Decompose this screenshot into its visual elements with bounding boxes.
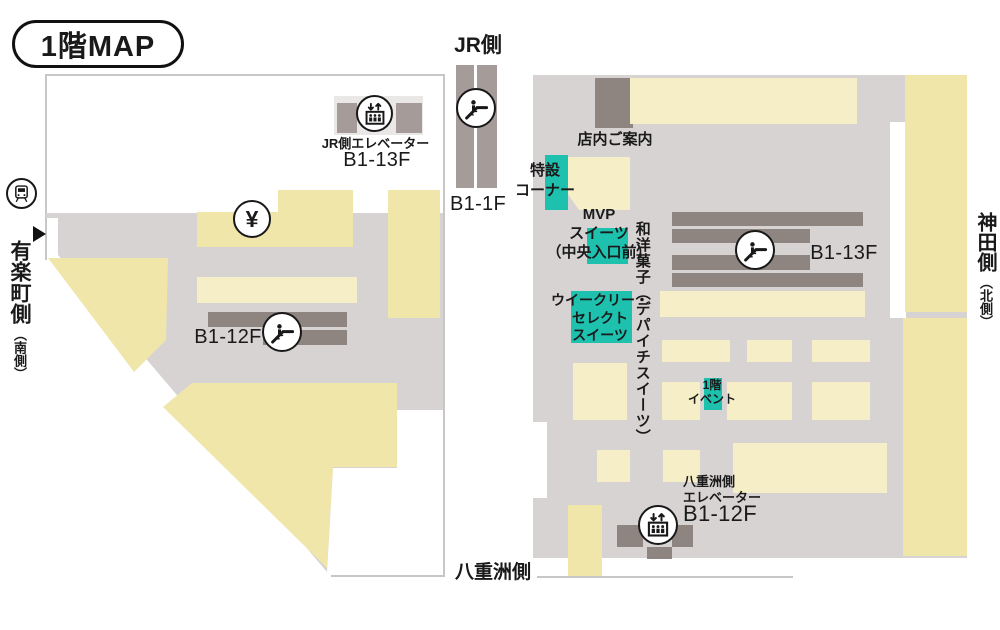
kanda-side-sub: （北側） bbox=[978, 276, 993, 328]
sales-area-block bbox=[573, 363, 627, 420]
elevator-fixture bbox=[337, 103, 357, 133]
floor-map: 1階MAP B1-12F ¥ JR側エレ bbox=[0, 0, 1000, 630]
floor-title: 1階MAP bbox=[12, 20, 184, 68]
left-building-border-bottom bbox=[331, 575, 445, 577]
floor-gap bbox=[890, 122, 906, 318]
escalator-icon bbox=[735, 230, 775, 270]
elevator-fixture bbox=[396, 103, 422, 133]
escalator-bank bbox=[672, 273, 863, 287]
yaesu-elevator-floor-range: B1-12F bbox=[683, 501, 778, 527]
yurakucho-side-label: 有楽町側（南側） bbox=[4, 240, 34, 380]
train-icon bbox=[6, 178, 37, 209]
elevator-icon bbox=[638, 505, 678, 545]
sales-area-block bbox=[905, 75, 967, 312]
left-building-border-top bbox=[45, 74, 445, 76]
confectionery-label: 和洋菓子（デパイチスイーツ） bbox=[633, 221, 651, 431]
sales-area-block bbox=[197, 277, 357, 303]
kanda-side-text: 神田側 bbox=[974, 212, 996, 272]
floor-gap bbox=[533, 422, 547, 498]
atm-yen-icon: ¥ bbox=[233, 200, 271, 238]
yurakucho-side-sub: （南側） bbox=[12, 328, 27, 380]
sales-area-block bbox=[597, 450, 630, 482]
left-building-border-right bbox=[443, 74, 445, 577]
sales-area-block bbox=[48, 258, 168, 372]
sales-area-block bbox=[662, 340, 730, 362]
sales-area-block bbox=[903, 318, 967, 556]
sales-area-block bbox=[278, 190, 353, 247]
sales-area-block bbox=[812, 340, 870, 362]
escalator-icon bbox=[262, 312, 302, 352]
elevator-fixture bbox=[647, 547, 672, 559]
jr-elevator-floor-range: B1-13F bbox=[332, 149, 422, 173]
yen-symbol: ¥ bbox=[246, 206, 259, 233]
jr-side-label: JR側 bbox=[446, 34, 510, 59]
special-corner-label: 特設 コーナー bbox=[508, 161, 582, 200]
jr-escalator-floor-range: B1-1F bbox=[450, 193, 504, 217]
sales-area-block bbox=[568, 505, 602, 576]
sales-area-block bbox=[812, 382, 870, 420]
escalator-icon bbox=[456, 88, 496, 128]
sales-area-block bbox=[388, 190, 440, 318]
kanda-side-label: 神田側（北側） bbox=[971, 212, 1000, 328]
event-space-label: 1階 イベント bbox=[682, 379, 742, 407]
sales-area-block bbox=[630, 78, 857, 124]
elevator-icon bbox=[356, 95, 393, 132]
sales-area-block bbox=[163, 383, 397, 572]
right-escalator-floor-range: B1-13F bbox=[808, 242, 880, 266]
escalator-bank bbox=[672, 212, 863, 226]
yurakucho-side-text: 有楽町側 bbox=[8, 240, 31, 324]
right-building-border-bottom bbox=[537, 576, 793, 578]
sales-area-block bbox=[747, 340, 792, 362]
yaesu-side-label: 八重洲側 bbox=[447, 562, 539, 584]
left-escalator-floor-range: B1-12F bbox=[194, 326, 262, 350]
entrance-arrow-icon bbox=[33, 226, 46, 242]
sales-area-block bbox=[660, 291, 865, 317]
store-guide-label: 店内ご案内 bbox=[569, 131, 661, 149]
store-guide-counter bbox=[595, 78, 633, 128]
